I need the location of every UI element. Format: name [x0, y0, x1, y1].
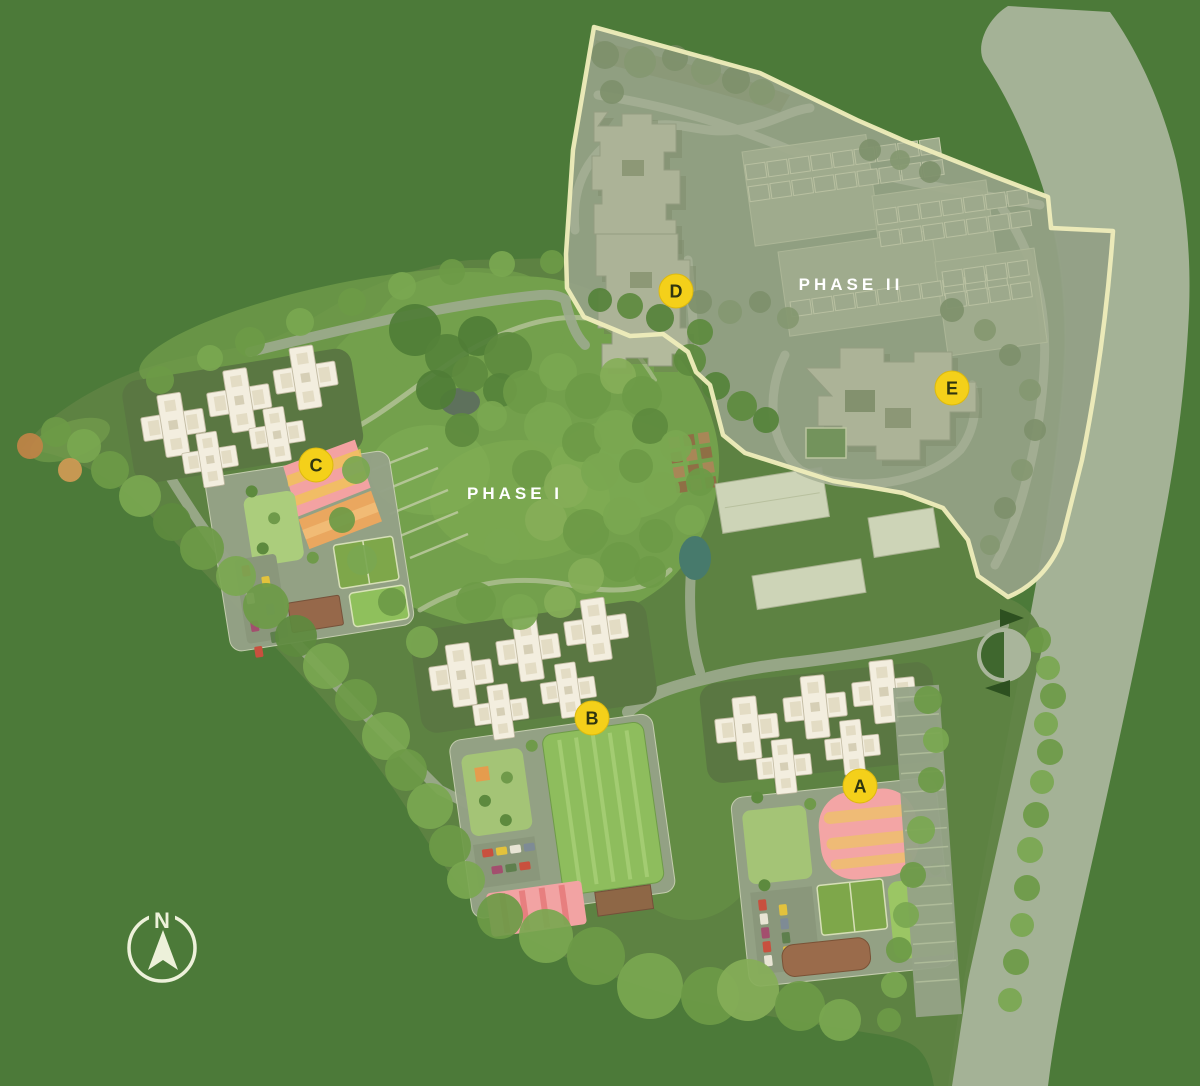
pool [679, 536, 711, 580]
parked-car [509, 844, 521, 853]
compass-north-label: N [154, 908, 170, 933]
tree [775, 981, 825, 1031]
tree [588, 288, 612, 312]
tree [439, 259, 465, 285]
building-marker-d[interactable]: D [659, 274, 693, 308]
tree [489, 251, 515, 277]
tree [180, 526, 224, 570]
site-plan-svg: PHASE I PHASE II ABCDE N [0, 0, 1200, 1086]
tree [594, 410, 638, 454]
tree [634, 556, 666, 588]
tree [447, 861, 485, 899]
tree [918, 767, 944, 793]
tree [923, 727, 949, 753]
site-plan-map: PHASE I PHASE II ABCDE N [0, 0, 1200, 1086]
tree [17, 433, 43, 459]
parked-car [762, 941, 771, 953]
tree [41, 417, 71, 447]
tree [675, 505, 705, 535]
tree [581, 453, 619, 491]
tree [617, 953, 683, 1019]
parked-car [523, 842, 535, 851]
tree [568, 558, 604, 594]
tree [1023, 802, 1049, 828]
parked-car [254, 646, 264, 658]
tree [477, 893, 523, 939]
tree [907, 816, 935, 844]
tree [567, 927, 625, 985]
tree [416, 370, 456, 410]
tree [819, 999, 861, 1041]
tree [406, 626, 438, 658]
tree [600, 542, 640, 582]
tree [519, 909, 573, 963]
phase1-label: PHASE I [467, 484, 563, 503]
tree [484, 528, 520, 564]
tree [329, 507, 355, 533]
building-marker-e[interactable]: E [935, 371, 969, 405]
marker-letter: D [670, 282, 683, 302]
parked-car [782, 932, 791, 944]
marker-letter: E [946, 379, 958, 399]
tree [639, 519, 673, 553]
parked-car [759, 913, 768, 925]
tree [660, 430, 692, 462]
tree [603, 497, 641, 535]
tree [1014, 875, 1040, 901]
tree [303, 643, 349, 689]
tree [686, 468, 714, 496]
building-marker-c[interactable]: C [299, 448, 333, 482]
parked-car [761, 927, 770, 939]
parked-car [496, 846, 508, 855]
tree [1040, 683, 1066, 709]
tree [877, 1008, 901, 1032]
tree [914, 686, 942, 714]
tree [452, 356, 488, 392]
tree [335, 679, 377, 721]
tree [342, 456, 370, 484]
tree [619, 449, 653, 483]
building-marker-b[interactable]: B [575, 701, 609, 735]
tree [456, 582, 496, 622]
tree [646, 304, 674, 332]
tree [544, 586, 576, 618]
tree [378, 588, 406, 616]
tree [1037, 739, 1063, 765]
tree [385, 749, 427, 791]
tree [1010, 913, 1034, 937]
tree [886, 937, 912, 963]
tree [1034, 712, 1058, 736]
tree [881, 972, 907, 998]
tree [687, 319, 713, 345]
tree [119, 475, 161, 517]
tree [477, 401, 507, 431]
tree [197, 345, 223, 371]
tree [525, 499, 567, 541]
building-marker-a[interactable]: A [843, 769, 877, 803]
tree [893, 902, 919, 928]
tree [445, 413, 479, 447]
marker-letter: B [586, 709, 599, 729]
parked-car [779, 904, 788, 916]
tree [235, 327, 265, 357]
tree [727, 391, 757, 421]
garden [742, 805, 813, 885]
tree [617, 293, 643, 319]
tree [1003, 949, 1029, 975]
tree [998, 988, 1022, 1012]
tree [388, 272, 416, 300]
tree [146, 366, 174, 394]
garden [460, 747, 533, 837]
parked-car [758, 899, 767, 911]
parked-car [505, 863, 517, 872]
tree [1036, 656, 1060, 680]
canopy [474, 766, 490, 782]
tree [702, 372, 730, 400]
marker-letter: A [854, 777, 867, 797]
phase2-label: PHASE II [799, 275, 904, 294]
tree [540, 250, 564, 274]
parked-car [491, 865, 503, 874]
tree [502, 594, 538, 630]
marker-letter: C [310, 456, 323, 476]
tree [644, 472, 680, 508]
tree [338, 288, 366, 316]
tree [1017, 837, 1043, 863]
tree [407, 783, 453, 829]
tree [286, 308, 314, 336]
parked-car [482, 848, 494, 857]
parked-car [519, 861, 531, 870]
tree [1030, 770, 1054, 794]
parked-car [780, 918, 789, 930]
tree [58, 458, 82, 482]
tree [563, 509, 609, 555]
tree [753, 407, 779, 433]
tree [900, 862, 926, 888]
tree [717, 959, 779, 1021]
tree [429, 825, 471, 867]
tree [347, 545, 377, 575]
